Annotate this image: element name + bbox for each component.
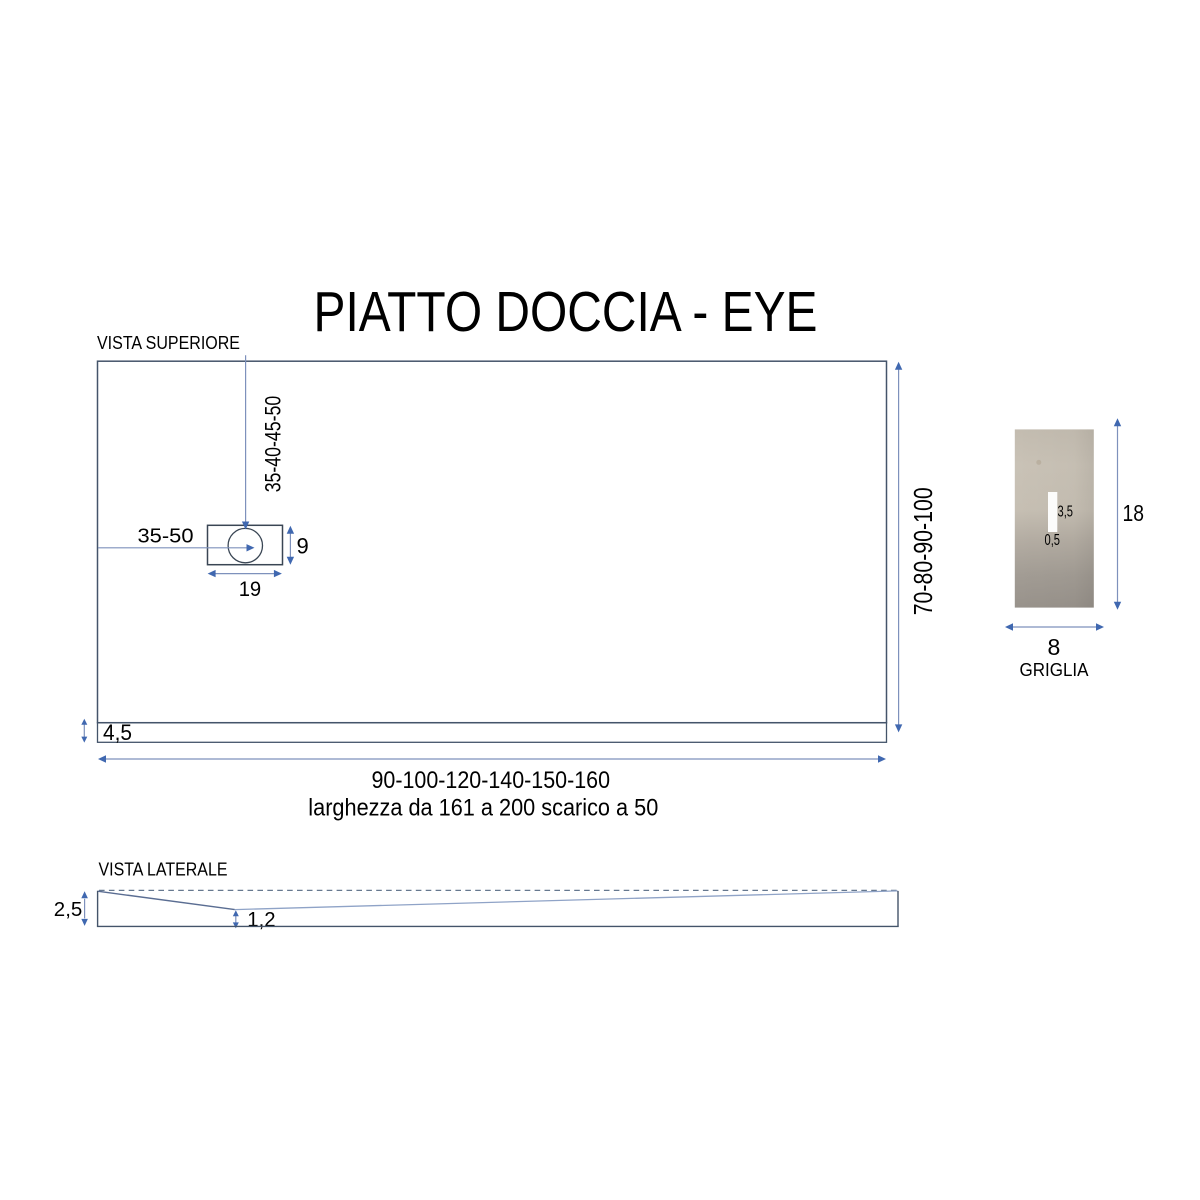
- svg-text:35-40-45-50: 35-40-45-50: [261, 396, 286, 493]
- svg-text:4,5: 4,5: [103, 720, 132, 745]
- svg-text:PIATTO DOCCIA - EYE: PIATTO DOCCIA - EYE: [314, 280, 818, 344]
- svg-text:9: 9: [297, 534, 309, 559]
- svg-text:3,5: 3,5: [1058, 504, 1074, 521]
- svg-text:VISTA LATERALE: VISTA LATERALE: [99, 859, 228, 880]
- svg-text:18: 18: [1123, 500, 1145, 526]
- svg-text:1,2: 1,2: [247, 908, 275, 931]
- svg-text:90-100-120-140-150-160: 90-100-120-140-150-160: [372, 767, 611, 794]
- svg-text:VISTA SUPERIORE: VISTA SUPERIORE: [97, 332, 240, 353]
- svg-text:0,5: 0,5: [1045, 532, 1061, 549]
- svg-text:19: 19: [239, 578, 262, 601]
- svg-text:2,5: 2,5: [54, 899, 83, 921]
- svg-text:GRIGLIA: GRIGLIA: [1020, 659, 1090, 680]
- svg-text:35-50: 35-50: [138, 525, 194, 548]
- svg-text:70-80-90-100: 70-80-90-100: [910, 487, 938, 615]
- svg-text:larghezza da 161 a 200 scarico: larghezza da 161 a 200 scarico a 50: [308, 795, 658, 822]
- svg-text:8: 8: [1048, 634, 1061, 660]
